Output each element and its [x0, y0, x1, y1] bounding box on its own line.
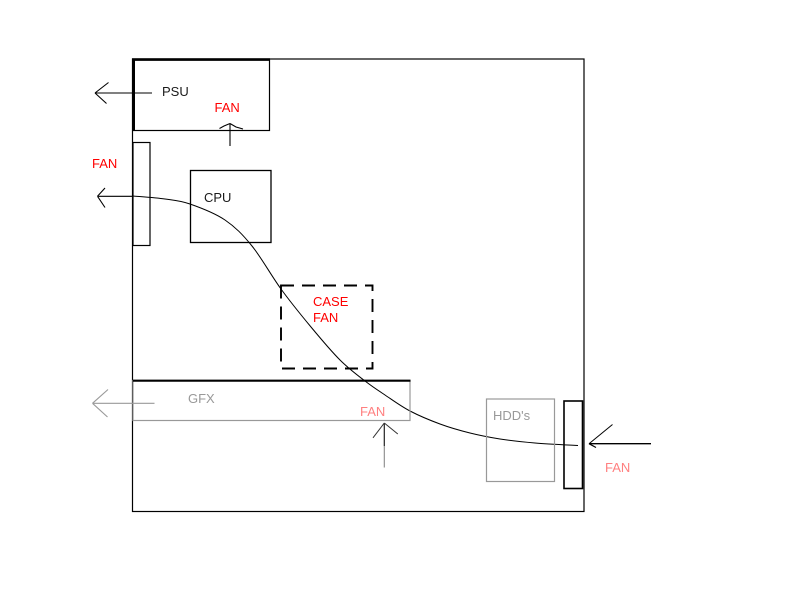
svg-text:FAN: FAN: [92, 156, 117, 171]
svg-text:FAN: FAN: [215, 100, 240, 115]
svg-text:FAN: FAN: [605, 460, 630, 475]
svg-text:FAN: FAN: [360, 404, 385, 419]
svg-text:CPU: CPU: [204, 190, 231, 205]
svg-text:FAN: FAN: [313, 310, 338, 325]
svg-text:CASE: CASE: [313, 294, 349, 309]
svg-text:PSU: PSU: [162, 84, 189, 99]
svg-text:GFX: GFX: [188, 391, 215, 406]
svg-text:HDD's: HDD's: [493, 408, 531, 423]
